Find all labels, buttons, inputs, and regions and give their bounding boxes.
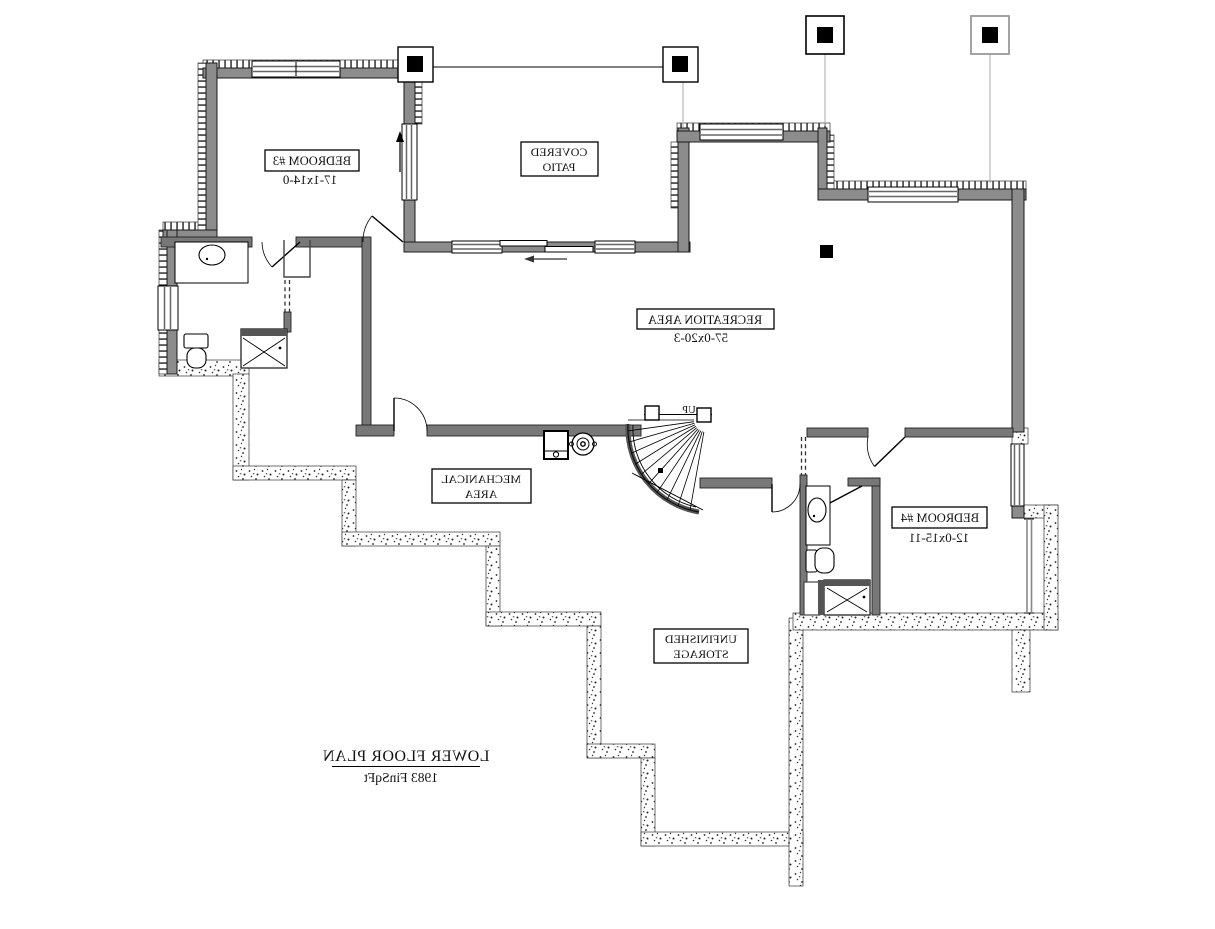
stair-post-left (645, 406, 659, 420)
bedroom3-name: BEDROOM #3 (273, 154, 351, 168)
covered-patio-label: COVERED PATIO (521, 142, 598, 176)
bathroom2-fixtures (804, 486, 870, 615)
interior-walls (161, 237, 1013, 615)
bedroom4-door (867, 437, 905, 467)
mechanical-line2: AREA (464, 487, 497, 501)
furnace-icon (544, 431, 568, 459)
linen-cubby (804, 582, 820, 615)
staircase (628, 406, 713, 512)
bedroom3-label: BEDROOM #3 17-1x14-0 (265, 150, 359, 187)
bedroom4-name: BEDROOM #4 (900, 511, 979, 525)
shower2-icon (818, 580, 870, 615)
storage-line2: STORAGE (673, 647, 728, 661)
hall-door (772, 484, 800, 512)
egress-window-well-window (1024, 519, 1034, 613)
slider-arrow (524, 256, 567, 263)
foundation-walls (159, 360, 1058, 886)
doors (262, 216, 905, 512)
unfinished-storage-label: UNFINISHED STORAGE (654, 629, 748, 663)
floor-plan-page: BEDROOM #3 17-1x14-0 COVERED PATIO RECRE… (0, 0, 1215, 929)
up-text: UP (682, 405, 696, 416)
patio-post-right (663, 47, 698, 82)
sink1-icon (199, 245, 225, 265)
title-block: LOWER FLOOR PLAN 1983 FinSqFt (322, 748, 489, 785)
covered-patio-line2: PATIO (542, 160, 575, 174)
sink2-icon (808, 498, 826, 522)
plan-area: 1983 FinSqFt (364, 770, 438, 785)
deck-post-right (971, 16, 1009, 54)
mechanical-area-label: MECHANICAL AREA (432, 469, 531, 503)
stair-up-label: UP (682, 405, 696, 416)
recreation-dims: 57-0x20-3 (674, 330, 728, 345)
bedroom4-label: BEDROOM #4 12-0x15-11 (892, 507, 987, 545)
mechanical-line1: MECHANICAL (441, 472, 521, 486)
patio-post-left (398, 47, 433, 82)
toilet2-icon (806, 548, 834, 573)
bedroom3-dims: 17-1x14-0 (283, 172, 337, 187)
recreation-name: RECREATION AREA (648, 313, 762, 327)
covered-patio-line1: COVERED (530, 145, 587, 159)
stair-post-right (697, 408, 711, 422)
shower1-icon (241, 329, 287, 368)
plan-title: LOWER FLOOR PLAN (322, 748, 489, 765)
deck-post-left (806, 16, 844, 54)
bedroom4-dims: 12-0x15-11 (909, 530, 969, 545)
floor-plan-canvas: BEDROOM #3 17-1x14-0 COVERED PATIO RECRE… (0, 0, 1215, 929)
mechanical-door (394, 398, 427, 431)
bathroom1-door (262, 242, 300, 267)
interior-post (820, 245, 833, 258)
toilet1-icon (184, 334, 208, 368)
recreation-area-label: RECREATION AREA 57-0x20-3 (637, 309, 774, 345)
storage-line1: UNFINISHED (665, 632, 737, 646)
